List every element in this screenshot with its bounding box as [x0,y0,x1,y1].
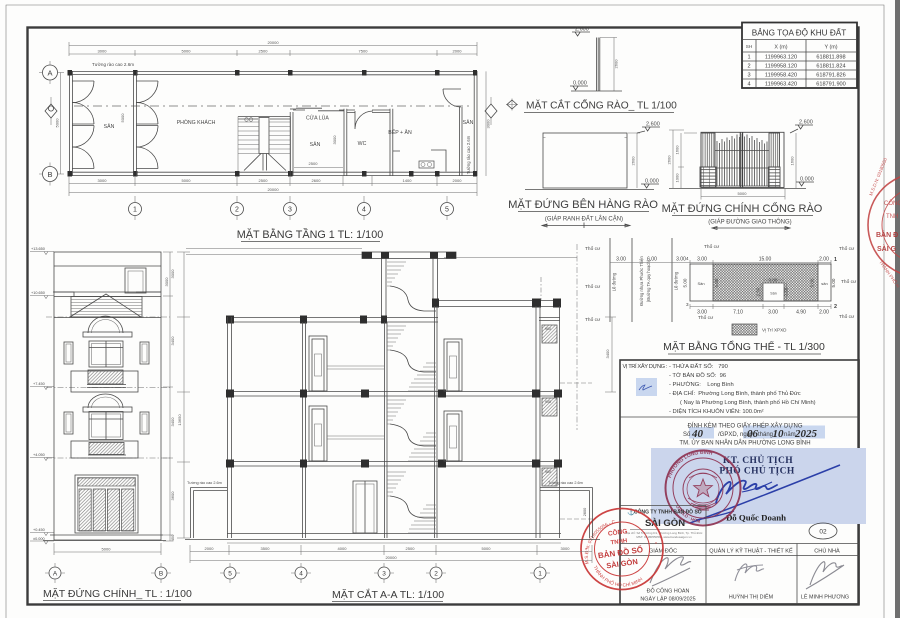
svg-text:5: 5 [445,207,449,214]
svg-text:- DIỆN TÍCH KHUÔN VIÊN: 100.0m: - DIỆN TÍCH KHUÔN VIÊN: 100.0m² [669,407,764,415]
svg-text:618791.826: 618791.826 [816,73,846,79]
svg-text:450: 450 [170,534,175,541]
svg-text:1: 1 [133,207,137,214]
svg-text:2600: 2600 [312,178,322,183]
svg-text:*: * [655,542,657,548]
svg-text:5.00: 5.00 [810,278,815,287]
svg-text:5000: 5000 [182,49,192,54]
svg-text:3000: 3000 [98,49,108,54]
svg-text:3000: 3000 [98,178,108,183]
svg-text:2: 2 [235,207,239,214]
svg-text:SÂN: SÂN [104,123,115,130]
svg-text:QUẢN LÝ KỸ THUẬT - THIẾT KẾ: QUẢN LÝ KỸ THUẬT - THIẾT KẾ [709,548,793,555]
svg-text:15.00: 15.00 [759,257,772,263]
svg-text:SÂN: SÂN [310,141,321,148]
svg-text:618811.824: 618811.824 [816,64,845,70]
svg-text:6.00: 6.00 [647,257,657,263]
svg-text:1199963.120: 1199963.120 [765,55,797,61]
svg-text:Vị Trí XPXD: Vị Trí XPXD [762,328,787,333]
svg-text:3500: 3500 [261,546,271,551]
svg-text:B: B [159,571,163,578]
svg-text:3.00: 3.00 [616,257,626,263]
svg-text:4000: 4000 [338,546,348,551]
svg-text:2025: 2025 [794,428,818,440]
svg-text:Số: Số [683,432,691,438]
svg-text:2.00: 2.00 [819,310,829,316]
svg-text:WC: WC [358,141,367,147]
svg-text:CỬA LÙA: CỬA LÙA [306,115,329,122]
svg-text:3400: 3400 [170,417,175,427]
svg-text:+10.650: +10.650 [31,291,45,295]
svg-text:tháng: tháng [758,432,773,438]
svg-text:5.00: 5.00 [831,278,836,287]
svg-text:2000: 2000 [453,49,463,54]
svg-text:*: * [585,548,587,554]
svg-text:1199958.120: 1199958.120 [765,64,797,70]
svg-text:3000: 3000 [486,119,491,129]
svg-text:VỊ TRÍ XÂY DỰNG :: VỊ TRÍ XÂY DỰNG : [623,363,668,370]
svg-text:- THỬA ĐẤT SỐ: 790: - THỬA ĐẤT SỐ: 790 [669,363,728,370]
svg-text:1: 1 [747,55,750,61]
svg-text:1: 1 [538,571,542,578]
svg-text:2600: 2600 [667,155,672,165]
svg-text:2.50: 2.50 [756,287,761,296]
svg-text:3.00: 3.00 [697,257,707,263]
svg-text:Thổ cư: Thổ cư [585,316,601,323]
svg-text:3400: 3400 [605,349,610,359]
svg-text:PHÓ CHỦ TỊCH: PHÓ CHỦ TỊCH [719,465,795,477]
svg-text:BẾP + ĂN: BẾP + ĂN [388,129,412,136]
svg-text:2000: 2000 [205,546,215,551]
svg-text:2: 2 [747,64,750,70]
svg-text:2500: 2500 [259,49,269,54]
svg-text:MẶT BẰNG TỔNG THỂ - TL 1/300: MẶT BẰNG TỔNG THỂ - TL 1/300 [663,340,825,353]
svg-text:3000: 3000 [170,269,175,279]
svg-text:PHÒNG KHÁCH: PHÒNG KHÁCH [177,119,216,126]
svg-text:5000: 5000 [55,118,60,128]
svg-text:3: 3 [288,207,292,214]
svg-text:MẶT ĐỨNG CHÍNH_ TL : 1/100: MẶT ĐỨNG CHÍNH_ TL : 1/100 [43,587,192,600]
svg-text:5000: 5000 [182,178,192,183]
svg-text:1000: 1000 [675,173,680,183]
svg-text:Đỗ Quốc Doanh: Đỗ Quốc Doanh [726,513,786,523]
svg-text:7.10: 7.10 [733,310,743,316]
svg-text:MẶT ĐỨNG CHÍNH CỔNG RÀO: MẶT ĐỨNG CHÍNH CỔNG RÀO [662,202,823,215]
svg-text:2.00: 2.00 [819,257,829,263]
svg-text:3000: 3000 [164,277,169,287]
svg-text:1600: 1600 [675,145,680,155]
svg-text:1199958.420: 1199958.420 [765,73,797,79]
svg-text:3.00: 3.00 [697,310,707,316]
svg-text:sân: sân [821,281,827,286]
svg-text:MST: 0318055056 - www.bandosai: MST: 0318055056 - www.bandosaigon.vn [636,535,692,539]
svg-text:+13.650: +13.650 [31,247,45,251]
svg-text:BẢNG TỌA ĐỘ KHU ĐẤT: BẢNG TỌA ĐỘ KHU ĐẤT [752,27,846,38]
svg-text:B: B [47,170,52,179]
svg-text:Tường rào cao 2.6m: Tường rào cao 2.6m [92,62,134,67]
svg-text:Tường rào cao 2.6m: Tường rào cao 2.6m [466,135,471,174]
svg-text:5000: 5000 [120,113,125,123]
svg-text:5: 5 [228,571,232,578]
svg-text:±0.000: ±0.000 [33,537,45,541]
svg-text:TM. ỦY BAN NHÂN DÂN PHƯỜNG LON: TM. ỦY BAN NHÂN DÂN PHƯỜNG LONG BÌNH [679,440,810,447]
svg-text:Thổ cư: Thổ cư [839,313,855,320]
svg-text:2: 2 [834,304,837,310]
svg-text:3: 3 [747,73,750,79]
svg-text:4.90: 4.90 [796,310,806,316]
svg-text:A: A [47,68,52,77]
svg-text:Thổ cư: Thổ cư [839,245,855,252]
svg-text:20000: 20000 [267,187,279,192]
svg-text:2000: 2000 [453,178,463,183]
svg-text:ĐÍNH KÈM THEO GIẤY PHÉP XÂY DỰ: ĐÍNH KÈM THEO GIẤY PHÉP XÂY DỰNG [687,423,802,430]
svg-text:2500: 2500 [406,546,416,551]
svg-text:2600: 2600 [614,59,619,69]
svg-text:2500: 2500 [309,161,319,166]
svg-text:2: 2 [434,571,438,578]
svg-text:CHỦ NHÀ: CHỦ NHÀ [814,548,840,555]
svg-text:Y (m): Y (m) [824,45,837,51]
svg-text:năm: năm [784,432,796,438]
svg-text:618791.900: 618791.900 [816,82,846,88]
svg-text:4: 4 [299,571,303,578]
svg-text:10: 10 [773,428,785,440]
svg-text:618811.898: 618811.898 [816,55,845,61]
svg-text:Lề đường: Lề đường [674,271,679,290]
svg-text:Đường nhựa Phước Thiện: Đường nhựa Phước Thiện [639,255,644,305]
svg-text:+7.450: +7.450 [33,382,45,386]
svg-text:5.00: 5.00 [683,278,688,287]
svg-text:2600: 2600 [583,508,587,516]
svg-text:900: 900 [545,400,551,404]
svg-text:Sân: Sân [697,281,704,286]
svg-text:5000: 5000 [102,547,112,552]
svg-text:X (m): X (m) [774,45,787,51]
svg-text:40: 40 [691,428,704,440]
svg-text:3400: 3400 [170,336,175,346]
svg-text:ĐỖ CÔNG HOAN: ĐỖ CÔNG HOAN [647,588,690,595]
svg-text:- ĐỊA CHỈ: Phường Long Bình,: - ĐỊA CHỈ: Phường Long Bình, thành phố T… [669,390,801,397]
svg-text:MẶT BẰNG TẦNG 1 TL: 1/100: MẶT BẰNG TẦNG 1 TL: 1/100 [237,228,383,241]
svg-text:1600: 1600 [790,156,795,166]
svg-text:( Nay là Phường Long Bình, thà: ( Nay là Phường Long Bình, thành phố Hồ … [680,400,816,406]
svg-text:3.00: 3.00 [768,310,778,316]
svg-text:SÀI GÒN: SÀI GÒN [645,517,685,529]
svg-text:NGÀY LẬP 08/09/2025: NGÀY LẬP 08/09/2025 [640,596,695,603]
svg-text:4: 4 [362,207,366,214]
svg-text:20000: 20000 [385,555,397,560]
svg-text:CÔNG: CÔNG [884,200,900,207]
svg-text:Thổ cư: Thổ cư [704,243,720,250]
svg-text:2.50: 2.50 [784,287,789,296]
svg-text:HUỲNH THỊ DIỄM: HUỲNH THỊ DIỄM [729,594,774,601]
svg-text:5.00: 5.00 [714,278,719,287]
svg-text:(GIÁP ĐƯỜNG GIAO THÔNG): (GIÁP ĐƯỜNG GIAO THÔNG) [708,219,791,226]
svg-text:3000: 3000 [332,135,337,145]
svg-text:900: 900 [545,470,551,474]
svg-text:3: 3 [686,302,689,307]
svg-text:1199963.420: 1199963.420 [765,82,797,88]
svg-text:2600: 2600 [631,156,636,166]
svg-text:Thổ cư: Thổ cư [585,283,601,290]
svg-text:BẢN Đ: BẢN Đ [876,230,898,239]
svg-text:2500: 2500 [259,178,269,183]
svg-text:4: 4 [686,256,689,261]
svg-text:+4.050: +4.050 [33,453,45,457]
svg-text:SÂN: SÂN [463,119,474,126]
svg-text:Tường rào cao 2.6m: Tường rào cao 2.6m [187,481,222,485]
svg-text:Sân: Sân [770,292,776,296]
svg-text:TNH: TNH [886,214,898,220]
svg-text:3000: 3000 [561,546,571,551]
svg-text:900: 900 [545,327,551,331]
svg-text:3: 3 [382,571,386,578]
svg-text:- PHƯỜNG: Long Bình: - PHƯỜNG: Long Bình [669,381,734,388]
svg-text:- TỜ BẢN ĐỒ SỐ: 96: - TỜ BẢN ĐỒ SỐ: 96 [669,372,726,379]
svg-text:SH: SH [746,44,752,49]
svg-text:MẶT CẮT CỔNG RÀO_ TL 1/100: MẶT CẮT CỔNG RÀO_ TL 1/100 [526,99,677,112]
svg-text:20000: 20000 [267,40,279,45]
svg-text:3.00: 3.00 [676,257,686,263]
svg-text:7500: 7500 [359,49,369,54]
svg-text:3600: 3600 [170,491,175,501]
svg-text:LÊ MINH PHƯƠNG: LÊ MINH PHƯƠNG [801,593,849,601]
svg-text:+0.450: +0.450 [33,528,45,532]
svg-text:Thổ cư: Thổ cư [841,278,857,285]
svg-text:5000: 5000 [738,191,748,196]
svg-text:1400: 1400 [403,178,413,183]
svg-text:Tường rào cao 2.6m: Tường rào cao 2.6m [548,481,583,485]
svg-text:Lề đường: Lề đường [612,272,617,291]
svg-text:Thổ cư: Thổ cư [585,245,601,252]
svg-text:(Đường TA quy hoạch): (Đường TA quy hoạch) [646,259,651,302]
svg-text:06: 06 [747,428,759,440]
svg-text:A: A [53,571,58,578]
svg-text:5000: 5000 [482,546,492,551]
svg-text:KT. CHỦ TỊCH: KT. CHỦ TỊCH [723,454,793,466]
svg-text:13650: 13650 [177,414,182,426]
svg-text:MẶT CẮT A-A TL: 1/100: MẶT CẮT A-A TL: 1/100 [332,588,444,601]
svg-text:1: 1 [834,257,837,263]
svg-text:SÀI G: SÀI G [877,244,897,253]
svg-text:02: 02 [819,529,827,536]
svg-text:MẶT ĐỨNG BÊN HÀNG RÀO: MẶT ĐỨNG BÊN HÀNG RÀO [508,198,658,211]
svg-text:(GIÁP RANH ĐẤT LÂN CẬN): (GIÁP RANH ĐẤT LÂN CẬN) [545,216,623,223]
svg-text:4: 4 [747,82,750,88]
